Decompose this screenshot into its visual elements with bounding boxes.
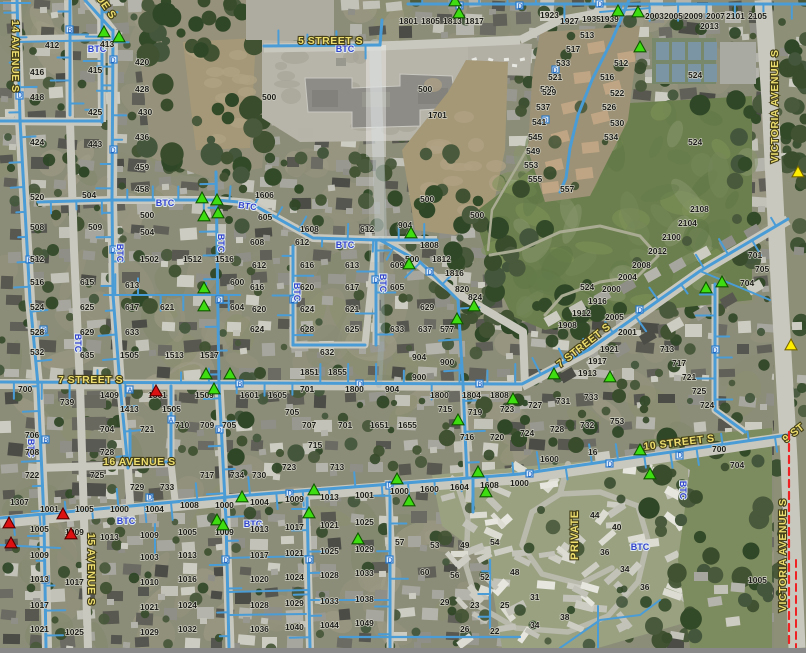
svg-text:727: 727 bbox=[528, 400, 542, 410]
svg-text:504: 504 bbox=[82, 190, 96, 200]
svg-text:625: 625 bbox=[345, 324, 359, 334]
svg-text:549: 549 bbox=[526, 146, 540, 156]
svg-text:1005: 1005 bbox=[178, 527, 197, 537]
svg-text:615: 615 bbox=[80, 277, 94, 287]
svg-text:704: 704 bbox=[100, 424, 114, 434]
svg-text:PRIVATE: PRIVATE bbox=[569, 510, 581, 560]
svg-text:624: 624 bbox=[250, 324, 264, 334]
svg-text:600: 600 bbox=[230, 277, 244, 287]
svg-text:512: 512 bbox=[614, 58, 628, 68]
svg-text:1044: 1044 bbox=[320, 620, 339, 630]
svg-text:1601: 1601 bbox=[240, 390, 259, 400]
svg-text:1049: 1049 bbox=[355, 618, 374, 628]
svg-text:526: 526 bbox=[602, 102, 616, 112]
svg-text:D: D bbox=[110, 148, 115, 155]
svg-text:29: 29 bbox=[440, 597, 450, 607]
svg-text:577: 577 bbox=[440, 324, 454, 334]
svg-text:1029: 1029 bbox=[355, 544, 374, 554]
svg-text:705: 705 bbox=[222, 420, 236, 430]
svg-text:BTC: BTC bbox=[117, 516, 136, 526]
svg-text:728: 728 bbox=[100, 447, 114, 457]
svg-text:2104: 2104 bbox=[678, 218, 697, 228]
svg-text:723: 723 bbox=[500, 404, 514, 414]
svg-text:BTC: BTC bbox=[336, 240, 355, 250]
svg-text:1004: 1004 bbox=[145, 504, 164, 514]
svg-text:723: 723 bbox=[282, 462, 296, 472]
svg-text:1604: 1604 bbox=[450, 482, 469, 492]
svg-text:2001: 2001 bbox=[618, 327, 637, 337]
svg-text:753: 753 bbox=[610, 416, 624, 426]
svg-text:500: 500 bbox=[420, 194, 434, 204]
svg-text:705: 705 bbox=[285, 407, 299, 417]
svg-text:1025: 1025 bbox=[320, 546, 339, 556]
svg-text:725: 725 bbox=[692, 386, 706, 396]
svg-text:D: D bbox=[216, 298, 221, 305]
svg-text:B: B bbox=[44, 438, 49, 445]
svg-text:1923: 1923 bbox=[540, 10, 559, 20]
svg-text:2013: 2013 bbox=[700, 21, 719, 31]
svg-text:717: 717 bbox=[200, 470, 214, 480]
svg-text:2101: 2101 bbox=[726, 11, 745, 21]
svg-text:BTC: BTC bbox=[378, 274, 388, 293]
svg-text:1505: 1505 bbox=[162, 404, 181, 414]
svg-text:1800: 1800 bbox=[345, 384, 364, 394]
svg-text:2009: 2009 bbox=[684, 11, 703, 21]
svg-text:517: 517 bbox=[566, 44, 580, 54]
svg-text:628: 628 bbox=[300, 324, 314, 334]
svg-text:459: 459 bbox=[135, 162, 149, 172]
svg-text:1000: 1000 bbox=[390, 486, 409, 496]
svg-text:725: 725 bbox=[90, 470, 104, 480]
svg-text:D: D bbox=[427, 270, 432, 277]
svg-text:1028: 1028 bbox=[250, 600, 269, 610]
svg-text:1817: 1817 bbox=[465, 16, 484, 26]
svg-text:1028: 1028 bbox=[320, 570, 339, 580]
svg-text:26: 26 bbox=[460, 624, 470, 634]
svg-text:719: 719 bbox=[468, 407, 482, 417]
svg-text:733: 733 bbox=[160, 482, 174, 492]
svg-text:2004: 2004 bbox=[618, 272, 637, 282]
svg-text:1013: 1013 bbox=[100, 532, 119, 542]
svg-text:620: 620 bbox=[252, 304, 266, 314]
svg-text:1000: 1000 bbox=[215, 500, 234, 510]
svg-text:1040: 1040 bbox=[285, 622, 304, 632]
svg-text:D: D bbox=[110, 248, 115, 255]
svg-text:616: 616 bbox=[250, 282, 264, 292]
svg-text:1013: 1013 bbox=[250, 524, 269, 534]
svg-text:1912: 1912 bbox=[572, 308, 591, 318]
svg-text:721: 721 bbox=[682, 372, 696, 382]
svg-text:1921: 1921 bbox=[600, 344, 619, 354]
svg-text:729: 729 bbox=[130, 482, 144, 492]
svg-text:1021: 1021 bbox=[30, 624, 49, 634]
svg-text:38: 38 bbox=[560, 612, 570, 622]
svg-text:1021: 1021 bbox=[140, 602, 159, 612]
svg-text:1017: 1017 bbox=[65, 577, 84, 587]
svg-text:D: D bbox=[677, 453, 682, 460]
svg-text:1033: 1033 bbox=[320, 596, 339, 606]
svg-text:708: 708 bbox=[25, 447, 39, 457]
svg-text:522: 522 bbox=[610, 88, 624, 98]
svg-text:B: B bbox=[238, 382, 243, 389]
svg-text:34: 34 bbox=[620, 564, 630, 574]
svg-text:16 AVENUE S: 16 AVENUE S bbox=[103, 456, 176, 468]
svg-text:513: 513 bbox=[580, 30, 594, 40]
svg-text:1005: 1005 bbox=[30, 524, 49, 534]
svg-text:2003: 2003 bbox=[645, 11, 664, 21]
svg-text:1020: 1020 bbox=[250, 574, 269, 584]
svg-text:608: 608 bbox=[250, 237, 264, 247]
svg-text:1013: 1013 bbox=[178, 550, 197, 560]
svg-text:BTC: BTC bbox=[115, 244, 125, 263]
svg-text:732: 732 bbox=[580, 420, 594, 430]
svg-text:605: 605 bbox=[258, 212, 272, 222]
svg-text:40: 40 bbox=[612, 522, 622, 532]
svg-text:1816: 1816 bbox=[445, 268, 464, 278]
svg-text:BTC: BTC bbox=[156, 198, 175, 208]
svg-text:1032: 1032 bbox=[178, 624, 197, 634]
svg-text:D: D bbox=[712, 348, 717, 355]
svg-text:1033: 1033 bbox=[355, 568, 374, 578]
svg-text:637: 637 bbox=[418, 324, 432, 334]
svg-text:1908: 1908 bbox=[558, 320, 577, 330]
svg-text:458: 458 bbox=[135, 184, 149, 194]
svg-text:1021: 1021 bbox=[285, 548, 304, 558]
svg-text:625: 625 bbox=[80, 302, 94, 312]
svg-text:715: 715 bbox=[308, 440, 322, 450]
svg-text:1017: 1017 bbox=[30, 600, 49, 610]
svg-text:704: 704 bbox=[730, 460, 744, 470]
svg-text:1917: 1917 bbox=[588, 356, 607, 366]
svg-text:521: 521 bbox=[548, 72, 562, 82]
svg-text:B: B bbox=[68, 28, 73, 35]
svg-text:1517: 1517 bbox=[200, 350, 219, 360]
svg-text:7 STREET S: 7 STREET S bbox=[58, 374, 123, 386]
svg-text:613: 613 bbox=[125, 280, 139, 290]
svg-text:415: 415 bbox=[88, 65, 102, 75]
svg-text:54: 54 bbox=[490, 537, 500, 547]
svg-text:D: D bbox=[147, 495, 152, 502]
svg-text:57: 57 bbox=[395, 537, 405, 547]
svg-text:520: 520 bbox=[30, 192, 44, 202]
svg-text:500: 500 bbox=[470, 210, 484, 220]
svg-text:706: 706 bbox=[25, 430, 39, 440]
svg-text:16: 16 bbox=[588, 447, 598, 457]
svg-text:1812: 1812 bbox=[432, 254, 451, 264]
svg-text:1036: 1036 bbox=[250, 624, 269, 634]
svg-text:1927: 1927 bbox=[560, 16, 579, 26]
svg-text:701: 701 bbox=[748, 250, 762, 260]
svg-text:53: 53 bbox=[430, 540, 440, 550]
svg-text:557: 557 bbox=[560, 184, 574, 194]
svg-text:1808: 1808 bbox=[490, 390, 509, 400]
svg-text:420: 420 bbox=[135, 57, 149, 67]
svg-text:49: 49 bbox=[460, 540, 470, 550]
svg-text:716: 716 bbox=[460, 432, 474, 442]
svg-text:824: 824 bbox=[468, 292, 482, 302]
svg-text:707: 707 bbox=[302, 420, 316, 430]
svg-text:1001: 1001 bbox=[355, 490, 374, 500]
svg-text:2005: 2005 bbox=[664, 11, 683, 21]
svg-text:541: 541 bbox=[532, 117, 546, 127]
svg-text:900: 900 bbox=[440, 357, 454, 367]
svg-text:1017: 1017 bbox=[285, 522, 304, 532]
svg-text:720: 720 bbox=[490, 432, 504, 442]
svg-text:701: 701 bbox=[300, 384, 314, 394]
svg-text:15 AVENUE S: 15 AVENUE S bbox=[85, 533, 97, 606]
svg-text:1505: 1505 bbox=[120, 350, 139, 360]
svg-text:1000: 1000 bbox=[110, 504, 129, 514]
svg-text:516: 516 bbox=[30, 277, 44, 287]
svg-text:904: 904 bbox=[385, 384, 399, 394]
svg-text:504: 504 bbox=[140, 227, 154, 237]
svg-text:1029: 1029 bbox=[285, 598, 304, 608]
svg-text:428: 428 bbox=[135, 84, 149, 94]
svg-text:VICTORIA AVENUE S: VICTORIA AVENUE S bbox=[769, 49, 781, 163]
svg-text:1029: 1029 bbox=[140, 627, 159, 637]
svg-text:555: 555 bbox=[528, 174, 542, 184]
svg-text:D: D bbox=[637, 308, 642, 315]
svg-text:1017: 1017 bbox=[250, 550, 269, 560]
svg-text:1651: 1651 bbox=[370, 420, 389, 430]
svg-text:1516: 1516 bbox=[215, 254, 234, 264]
svg-text:2007: 2007 bbox=[706, 11, 725, 21]
svg-text:500: 500 bbox=[418, 84, 432, 94]
svg-text:A: A bbox=[169, 418, 174, 425]
svg-text:1502: 1502 bbox=[140, 254, 159, 264]
svg-text:56: 56 bbox=[450, 570, 460, 580]
svg-text:1513: 1513 bbox=[165, 350, 184, 360]
svg-text:413: 413 bbox=[100, 39, 114, 49]
svg-text:621: 621 bbox=[345, 304, 359, 314]
svg-text:14 AVENUE S: 14 AVENUE S bbox=[9, 20, 21, 93]
svg-text:701: 701 bbox=[338, 420, 352, 430]
svg-text:612: 612 bbox=[295, 237, 309, 247]
svg-text:635: 635 bbox=[80, 350, 94, 360]
svg-text:724: 724 bbox=[700, 400, 714, 410]
svg-text:436: 436 bbox=[135, 132, 149, 142]
svg-text:734: 734 bbox=[230, 470, 244, 480]
svg-text:1025: 1025 bbox=[355, 517, 374, 527]
svg-text:5 STREET S: 5 STREET S bbox=[298, 35, 363, 47]
svg-text:530: 530 bbox=[610, 118, 624, 128]
svg-text:D: D bbox=[307, 558, 312, 565]
svg-text:1605: 1605 bbox=[268, 390, 287, 400]
svg-text:2100: 2100 bbox=[662, 232, 681, 242]
svg-text:1608: 1608 bbox=[300, 224, 319, 234]
svg-text:VICTORIA AVENUE S: VICTORIA AVENUE S bbox=[777, 498, 789, 612]
svg-text:528: 528 bbox=[30, 327, 44, 337]
svg-text:733: 733 bbox=[584, 392, 598, 402]
svg-text:545: 545 bbox=[528, 132, 542, 142]
svg-text:617: 617 bbox=[345, 282, 359, 292]
svg-text:BTC: BTC bbox=[678, 481, 688, 500]
svg-text:60: 60 bbox=[420, 567, 430, 577]
svg-text:700: 700 bbox=[18, 384, 32, 394]
svg-text:1606: 1606 bbox=[255, 190, 274, 200]
svg-text:1600: 1600 bbox=[540, 454, 559, 464]
svg-text:516: 516 bbox=[600, 72, 614, 82]
svg-text:1013: 1013 bbox=[320, 492, 339, 502]
svg-text:1409: 1409 bbox=[100, 390, 119, 400]
svg-text:1000: 1000 bbox=[510, 478, 529, 488]
svg-text:512: 512 bbox=[30, 254, 44, 264]
svg-text:1935: 1935 bbox=[582, 14, 601, 24]
svg-text:605: 605 bbox=[390, 282, 404, 292]
svg-text:1801: 1801 bbox=[399, 16, 418, 26]
svg-text:612: 612 bbox=[360, 224, 374, 234]
svg-text:524: 524 bbox=[688, 137, 702, 147]
svg-text:633: 633 bbox=[390, 324, 404, 334]
svg-text:709: 709 bbox=[200, 420, 214, 430]
svg-text:2105: 2105 bbox=[748, 11, 767, 21]
svg-text:533: 533 bbox=[556, 58, 570, 68]
svg-text:D: D bbox=[373, 278, 378, 285]
svg-text:616: 616 bbox=[300, 260, 314, 270]
svg-text:1009: 1009 bbox=[140, 530, 159, 540]
svg-text:34: 34 bbox=[530, 620, 540, 630]
svg-text:52: 52 bbox=[480, 572, 490, 582]
svg-text:22: 22 bbox=[490, 626, 500, 636]
svg-text:425: 425 bbox=[88, 107, 102, 117]
svg-text:2012: 2012 bbox=[648, 246, 667, 256]
svg-text:1016: 1016 bbox=[178, 574, 197, 584]
svg-text:1805: 1805 bbox=[421, 16, 440, 26]
svg-text:713: 713 bbox=[660, 344, 674, 354]
svg-text:D: D bbox=[597, 2, 602, 9]
svg-text:1009: 1009 bbox=[285, 494, 304, 504]
svg-text:2108: 2108 bbox=[690, 204, 709, 214]
svg-text:1808: 1808 bbox=[420, 240, 439, 250]
svg-text:A: A bbox=[128, 388, 133, 395]
svg-text:D: D bbox=[223, 558, 228, 565]
svg-text:500: 500 bbox=[140, 210, 154, 220]
svg-text:534: 534 bbox=[604, 132, 618, 142]
svg-text:1916: 1916 bbox=[588, 296, 607, 306]
svg-text:532: 532 bbox=[30, 347, 44, 357]
svg-text:1013: 1013 bbox=[30, 574, 49, 584]
svg-text:731: 731 bbox=[556, 396, 570, 406]
svg-text:715: 715 bbox=[438, 404, 452, 414]
svg-text:730: 730 bbox=[252, 470, 266, 480]
svg-text:620: 620 bbox=[300, 282, 314, 292]
svg-text:1913: 1913 bbox=[578, 368, 597, 378]
svg-text:621: 621 bbox=[160, 302, 174, 312]
svg-text:BTC: BTC bbox=[631, 542, 650, 552]
svg-text:612: 612 bbox=[252, 260, 266, 270]
svg-text:1005: 1005 bbox=[748, 575, 767, 585]
svg-text:604: 604 bbox=[230, 302, 244, 312]
svg-text:D: D bbox=[607, 462, 612, 469]
svg-text:724: 724 bbox=[520, 428, 534, 438]
svg-text:1855: 1855 bbox=[328, 367, 347, 377]
svg-text:48: 48 bbox=[510, 567, 520, 577]
svg-text:524: 524 bbox=[30, 302, 44, 312]
svg-text:44: 44 bbox=[590, 510, 600, 520]
svg-text:1008: 1008 bbox=[180, 500, 199, 510]
svg-text:1005: 1005 bbox=[75, 504, 94, 514]
svg-text:D: D bbox=[110, 58, 115, 65]
svg-text:900: 900 bbox=[412, 372, 426, 382]
svg-text:1003: 1003 bbox=[140, 552, 159, 562]
svg-text:D: D bbox=[387, 558, 392, 565]
svg-text:D: D bbox=[517, 4, 522, 11]
svg-text:524: 524 bbox=[688, 70, 702, 80]
svg-text:1600: 1600 bbox=[420, 484, 439, 494]
svg-text:705: 705 bbox=[755, 264, 769, 274]
svg-text:739: 739 bbox=[60, 397, 74, 407]
svg-text:624: 624 bbox=[300, 304, 314, 314]
svg-text:1010: 1010 bbox=[140, 577, 159, 587]
svg-text:36: 36 bbox=[640, 582, 650, 592]
svg-text:629: 629 bbox=[420, 302, 434, 312]
svg-text:728: 728 bbox=[550, 424, 564, 434]
svg-text:1024: 1024 bbox=[178, 600, 197, 610]
svg-text:904: 904 bbox=[412, 352, 426, 362]
svg-text:424: 424 bbox=[30, 137, 44, 147]
svg-text:1851: 1851 bbox=[300, 367, 319, 377]
svg-text:524: 524 bbox=[580, 282, 594, 292]
svg-text:629: 629 bbox=[80, 327, 94, 337]
svg-text:617: 617 bbox=[125, 302, 139, 312]
svg-text:412: 412 bbox=[45, 40, 59, 50]
svg-text:2008: 2008 bbox=[632, 260, 651, 270]
svg-text:36: 36 bbox=[600, 547, 610, 557]
svg-text:633: 633 bbox=[125, 327, 139, 337]
svg-text:722: 722 bbox=[25, 470, 39, 480]
svg-text:700: 700 bbox=[712, 444, 726, 454]
svg-text:609: 609 bbox=[390, 260, 404, 270]
svg-text:25: 25 bbox=[500, 600, 510, 610]
svg-text:500: 500 bbox=[262, 92, 276, 102]
svg-text:1025: 1025 bbox=[65, 627, 84, 637]
svg-text:2005: 2005 bbox=[605, 312, 624, 322]
svg-text:430: 430 bbox=[138, 107, 152, 117]
svg-text:1800: 1800 bbox=[430, 390, 449, 400]
svg-text:1512: 1512 bbox=[183, 254, 202, 264]
svg-text:1804: 1804 bbox=[462, 390, 481, 400]
svg-text:632: 632 bbox=[320, 347, 334, 357]
svg-text:1608: 1608 bbox=[480, 480, 499, 490]
svg-text:553: 553 bbox=[524, 160, 538, 170]
svg-text:D: D bbox=[17, 93, 22, 100]
svg-text:1009: 1009 bbox=[30, 550, 49, 560]
svg-text:B: B bbox=[478, 382, 483, 389]
svg-text:710: 710 bbox=[175, 420, 189, 430]
svg-text:2000: 2000 bbox=[602, 284, 621, 294]
svg-text:613: 613 bbox=[345, 260, 359, 270]
svg-text:1307: 1307 bbox=[10, 497, 29, 507]
svg-text:717: 717 bbox=[672, 358, 686, 368]
svg-text:1004: 1004 bbox=[250, 497, 269, 507]
svg-text:713: 713 bbox=[330, 462, 344, 472]
svg-text:1655: 1655 bbox=[398, 420, 417, 430]
svg-text:31: 31 bbox=[530, 592, 540, 602]
svg-text:721: 721 bbox=[140, 424, 154, 434]
svg-text:537: 537 bbox=[536, 102, 550, 112]
svg-text:D: D bbox=[216, 428, 221, 435]
svg-text:BTC: BTC bbox=[216, 234, 226, 253]
svg-text:509: 509 bbox=[88, 222, 102, 232]
svg-text:1021: 1021 bbox=[320, 520, 339, 530]
svg-text:1038: 1038 bbox=[355, 594, 374, 604]
svg-text:23: 23 bbox=[470, 600, 480, 610]
svg-text:1701: 1701 bbox=[428, 110, 447, 120]
svg-text:508: 508 bbox=[30, 222, 44, 232]
svg-text:1024: 1024 bbox=[285, 572, 304, 582]
svg-text:418: 418 bbox=[30, 92, 44, 102]
svg-text:704: 704 bbox=[740, 278, 754, 288]
